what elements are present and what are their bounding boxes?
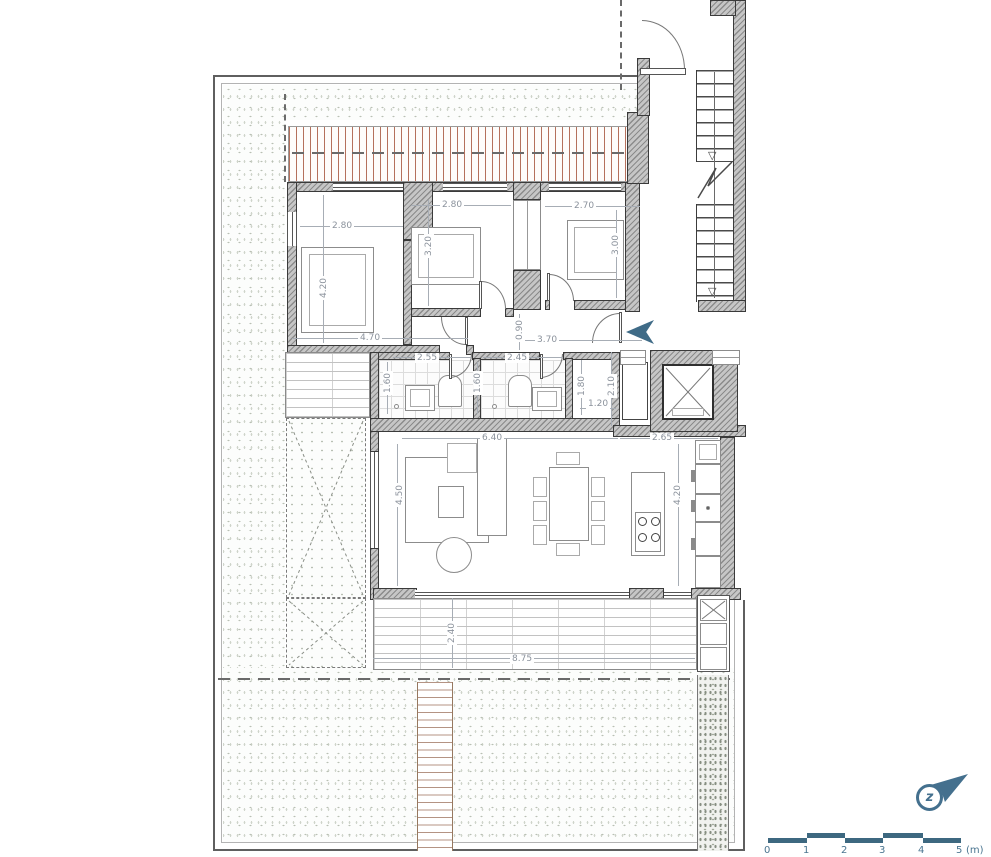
dining-chair [533,501,547,521]
door-leaf [465,317,468,345]
dim-label: 3.20 [424,234,434,258]
terrace-deck [373,598,697,670]
scale-bar-segment [923,838,961,843]
dim-label: 4.70 [358,333,382,343]
floor-drain [492,404,497,409]
dim-label: 2.55 [415,353,439,363]
dining-chair [556,543,580,556]
scale-bar-segment [845,838,883,843]
sofa-chaise [477,438,507,536]
burner-icon [651,517,660,526]
stair-direction-arrow-icon: ▽ [708,150,716,161]
dim-label: 1.80 [577,374,587,398]
scale-label: 2 [841,845,847,856]
burner-icon [651,533,660,542]
sliding-glass-door [415,590,629,598]
wall [565,358,573,420]
entry-door-leaf [619,312,622,343]
scale-bar-segment [768,838,807,843]
coffee-table [438,486,464,518]
dining-chair [533,525,547,545]
dim-label: 3.00 [611,233,621,257]
boundary-dashed-line [620,0,622,90]
scale-unit-label: (m) [966,845,984,856]
dim-label: 4.50 [395,483,405,507]
utility-unit [700,647,727,670]
dim-label: 2.80 [440,200,464,210]
dim-line [397,444,398,586]
dim-label: 0.90 [515,318,525,342]
cross-icon [286,598,366,668]
floor-plan-canvas: ▽ ▽ [0,0,991,857]
stair-direction-arrow-icon: ▽ [708,286,716,297]
sink-basin [410,389,430,407]
dining-table [549,467,589,541]
elevator-cab-sill [672,408,704,416]
burner-icon [638,533,647,542]
dining-chair [591,501,605,521]
scale-label: 0 [764,845,770,856]
dim-label: 1.60 [383,371,393,395]
burner-icon [638,517,647,526]
scale-label: 3 [879,845,885,856]
dim-label: 4.20 [673,483,683,507]
dim-label: 1.20 [586,399,610,409]
setback-dashed-line [218,678,735,680]
wall [370,418,620,432]
pergola-center-line [292,152,636,154]
window [549,183,621,191]
building-entry-door-leaf [640,68,686,75]
window [287,212,297,246]
hedge-strip [697,675,729,851]
dim-label: 2.40 [447,621,457,645]
dim-label: 2.80 [330,221,354,231]
counter-handle [691,538,695,550]
faucet [706,506,710,510]
window [333,183,403,191]
counter-handle [691,500,695,512]
dining-chair [533,477,547,497]
dim-line [323,195,324,343]
dim-label: 1.60 [473,371,483,395]
dim-label: 6.40 [480,433,504,443]
kitchen-counter [695,522,721,556]
wall [287,182,297,355]
boundary-dashed-line [284,94,286,182]
planter [712,350,740,365]
counter-handle [691,470,695,482]
wall [625,182,640,312]
cross-icon [286,418,366,598]
kitchen-counter [695,556,721,588]
kitchen-counter [695,464,721,494]
toilet [438,375,462,407]
side-table [436,537,472,573]
door-leaf [547,273,550,301]
garden-texture [223,668,734,842]
window [370,452,379,548]
bedroom1-mattress [309,254,366,326]
dim-line [402,438,618,439]
wardrobe [513,200,541,270]
dim-label: 4.20 [319,276,329,300]
dim-label: 2.10 [607,374,617,398]
stair-break-line-icon [692,160,737,204]
kitchen-appliance [699,444,717,460]
window [443,183,507,191]
wall [545,300,550,310]
pergola-roof [288,126,638,182]
side-deck [285,352,370,418]
wall [627,112,649,184]
dim-label: 2.65 [650,433,674,443]
dim-label: 3.70 [535,335,559,345]
cross-icon [700,599,727,621]
elevator-lobby [622,362,648,420]
scale-bar-segment [807,833,845,838]
dim-line [678,444,679,586]
dim-label: 8.75 [510,654,534,664]
dining-chair [591,525,605,545]
planter [620,350,646,365]
sink-basin [537,391,557,407]
wall [710,0,736,16]
wall [411,308,481,317]
scale-label: 1 [803,845,809,856]
scale-label: 4 [918,845,924,856]
dining-chair [591,477,605,497]
sliding-glass-door [664,590,691,598]
toilet [508,375,532,407]
wall [513,270,541,310]
dim-label: 2.45 [505,353,529,363]
wall [370,352,379,452]
scale-label: 5 [956,845,962,856]
logo-circle-icon: z [916,784,943,811]
utility-unit [700,623,727,645]
sofa-cushion [447,443,477,473]
scale-bar-segment [883,833,923,838]
wall [505,308,514,317]
wall [733,0,746,312]
wall [513,182,541,200]
garden-path [417,682,453,851]
wall [720,437,735,590]
dim-label: 2.70 [572,201,596,211]
door-leaf [479,281,482,309]
dining-chair [556,452,580,465]
floor-drain [394,404,399,409]
